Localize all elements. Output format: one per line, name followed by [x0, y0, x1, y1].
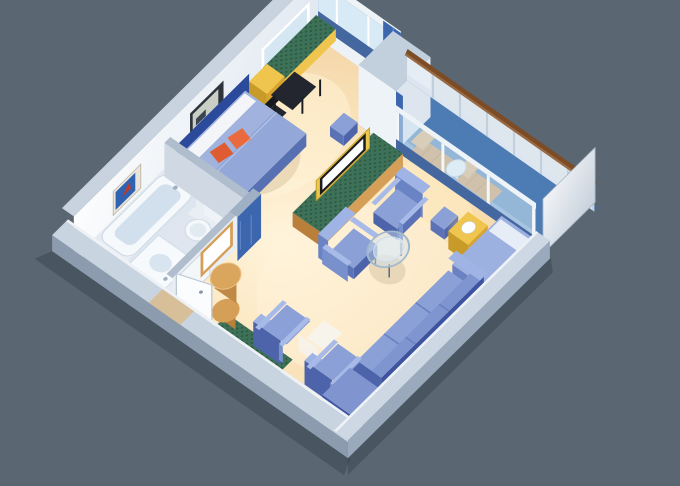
floor-plan-canvas	[0, 0, 680, 486]
suite-floor-plan-image	[0, 0, 680, 486]
